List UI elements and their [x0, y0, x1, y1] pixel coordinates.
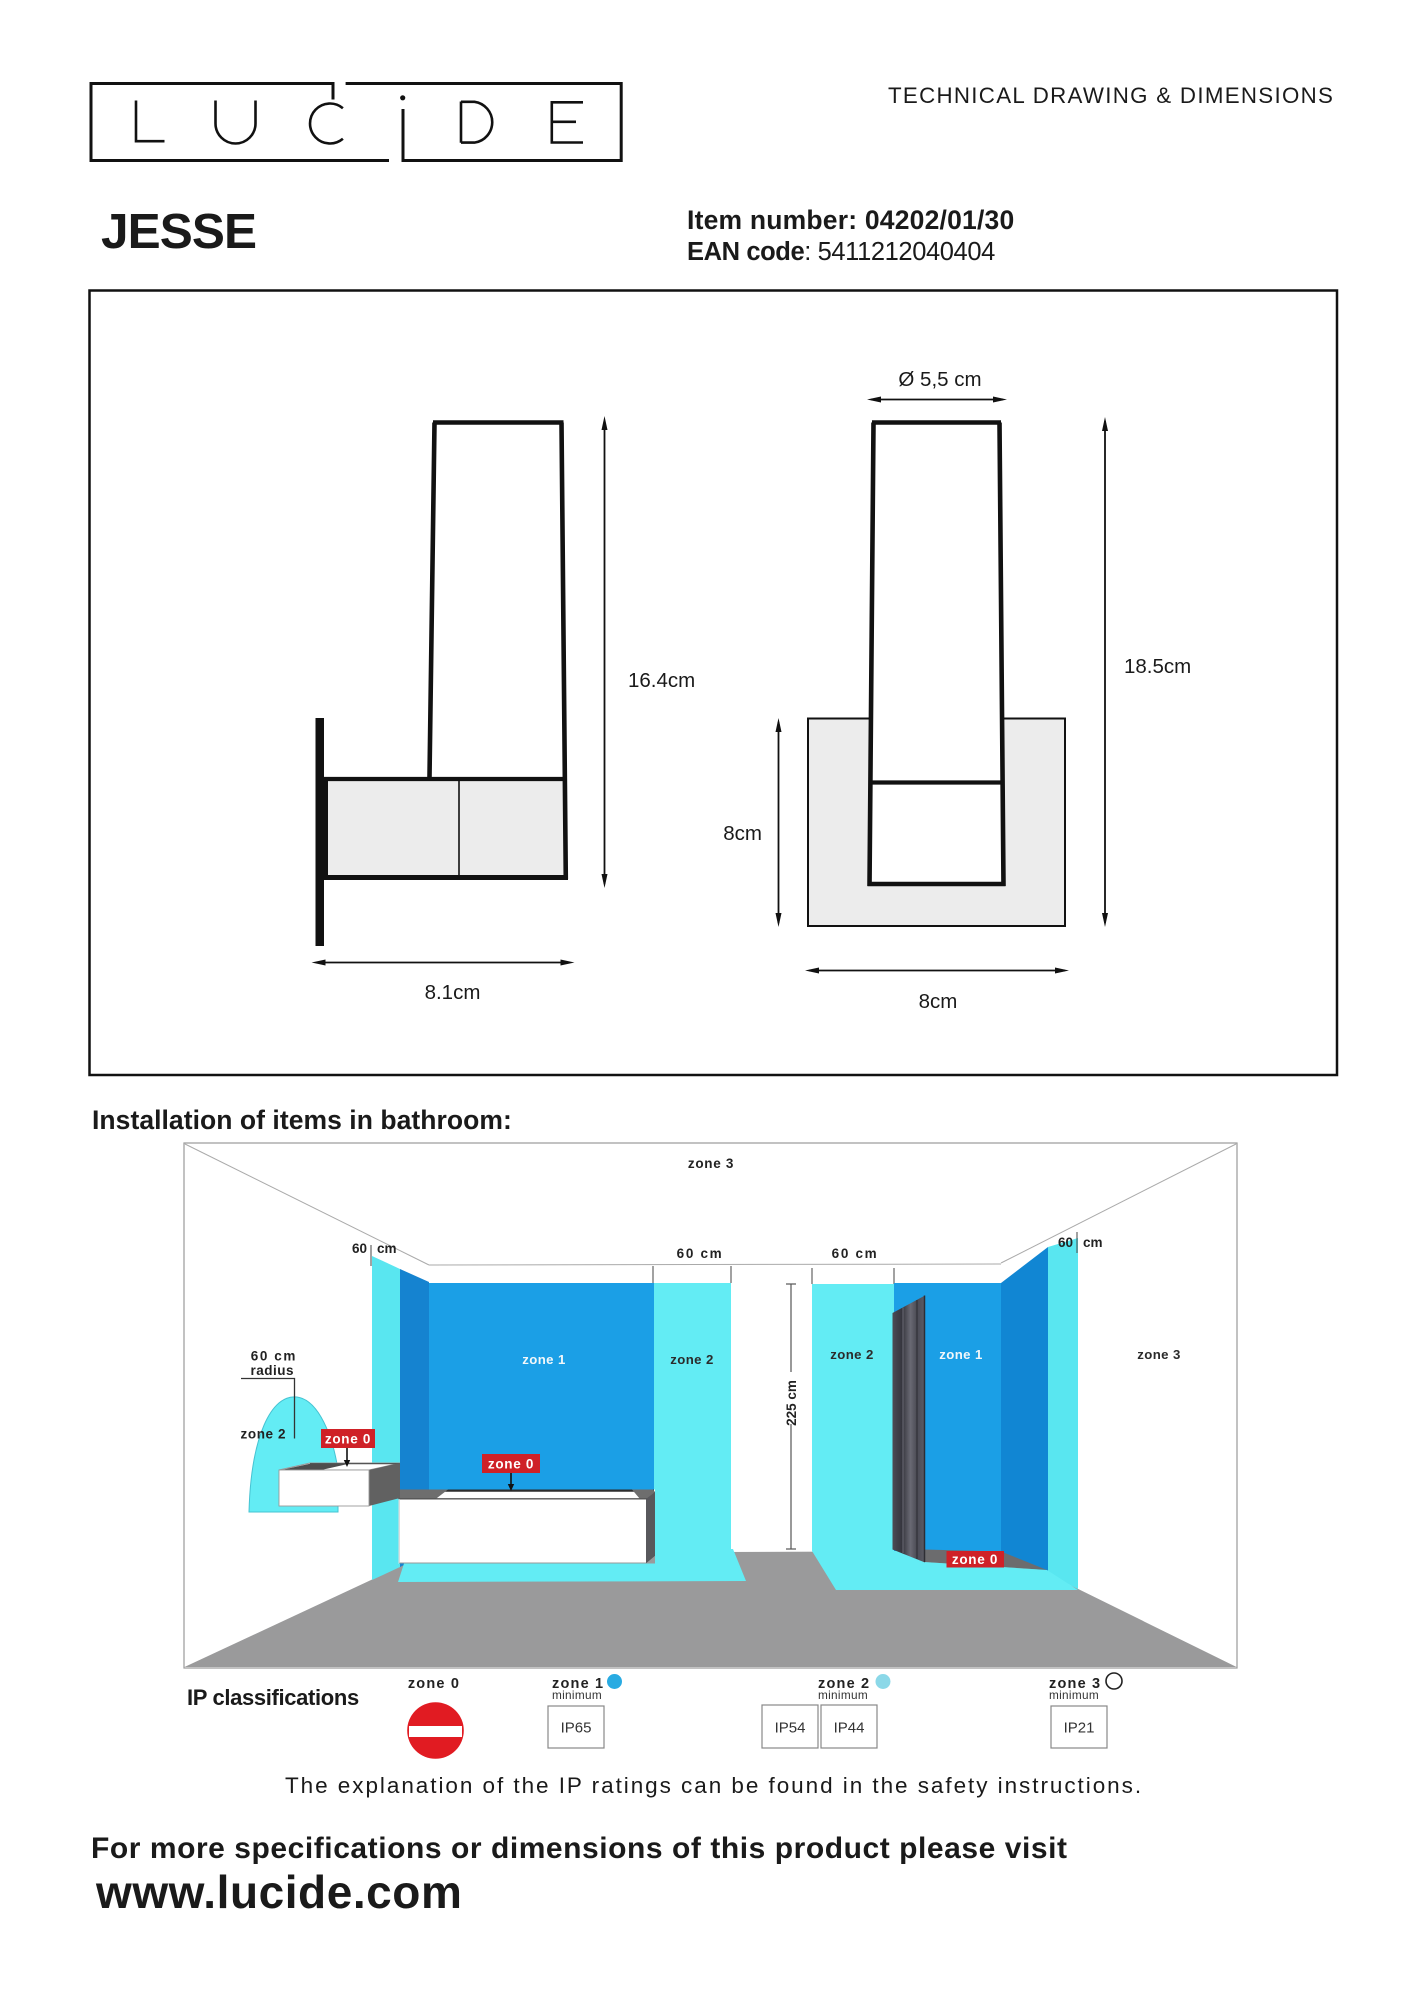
svg-text:225 cm: 225 cm: [784, 1380, 799, 1426]
svg-text:IP21: IP21: [1064, 1720, 1095, 1737]
svg-text:60 cm: 60 cm: [251, 1349, 297, 1364]
svg-text:8cm: 8cm: [919, 990, 958, 1013]
svg-text:zone 2: zone 2: [830, 1347, 873, 1362]
svg-text:For more specifications or dim: For more specifications or dimensions of…: [91, 1832, 1068, 1865]
svg-text:zone 0: zone 0: [952, 1552, 998, 1567]
svg-text:IP54: IP54: [775, 1720, 806, 1737]
svg-text:zone 3: zone 3: [1137, 1347, 1180, 1362]
svg-text:EAN code: 5411212040404: EAN code: 5411212040404: [687, 238, 995, 266]
svg-text:zone 1: zone 1: [522, 1352, 565, 1367]
svg-text:60: 60: [352, 1241, 367, 1256]
svg-text:zone 0: zone 0: [325, 1432, 371, 1447]
svg-text:zone 3: zone 3: [688, 1156, 734, 1171]
svg-text:JESSE: JESSE: [101, 204, 256, 259]
svg-text:60 cm: 60 cm: [832, 1246, 879, 1261]
svg-text:IP44: IP44: [834, 1720, 865, 1737]
svg-text:radius: radius: [250, 1363, 294, 1378]
svg-text:IP65: IP65: [561, 1720, 592, 1737]
svg-text:zone 0: zone 0: [408, 1676, 460, 1692]
svg-text:minimum: minimum: [818, 1688, 868, 1702]
svg-text:The explanation of the IP rati: The explanation of the IP ratings can be…: [285, 1773, 1143, 1798]
svg-text:60: 60: [1058, 1235, 1073, 1250]
svg-text:cm: cm: [377, 1241, 397, 1256]
svg-text:minimum: minimum: [1049, 1688, 1099, 1702]
svg-text:minimum: minimum: [552, 1688, 602, 1702]
svg-text:zone 1: zone 1: [939, 1347, 982, 1362]
svg-text:www.lucide.com: www.lucide.com: [95, 1866, 462, 1918]
svg-text:60 cm: 60 cm: [677, 1246, 724, 1261]
svg-text:18.5cm: 18.5cm: [1124, 655, 1191, 678]
svg-text:Ø 5,5 cm: Ø 5,5 cm: [898, 368, 981, 391]
svg-text:cm: cm: [1083, 1235, 1103, 1250]
svg-text:zone 2: zone 2: [241, 1427, 287, 1442]
svg-text:16.4cm: 16.4cm: [628, 669, 695, 692]
svg-text:8.1cm: 8.1cm: [425, 981, 481, 1004]
svg-text:zone 0: zone 0: [488, 1457, 534, 1472]
svg-text:zone 2: zone 2: [670, 1352, 713, 1367]
svg-text:Item number: 04202/01/30: Item number: 04202/01/30: [687, 205, 1014, 235]
svg-text:TECHNICAL DRAWING & DIMENSIONS: TECHNICAL DRAWING & DIMENSIONS: [888, 83, 1334, 108]
svg-text:8cm: 8cm: [723, 822, 762, 845]
svg-text:Installation of items in bathr: Installation of items in bathroom:: [92, 1105, 512, 1135]
svg-text:IP classifications: IP classifications: [187, 1685, 359, 1710]
